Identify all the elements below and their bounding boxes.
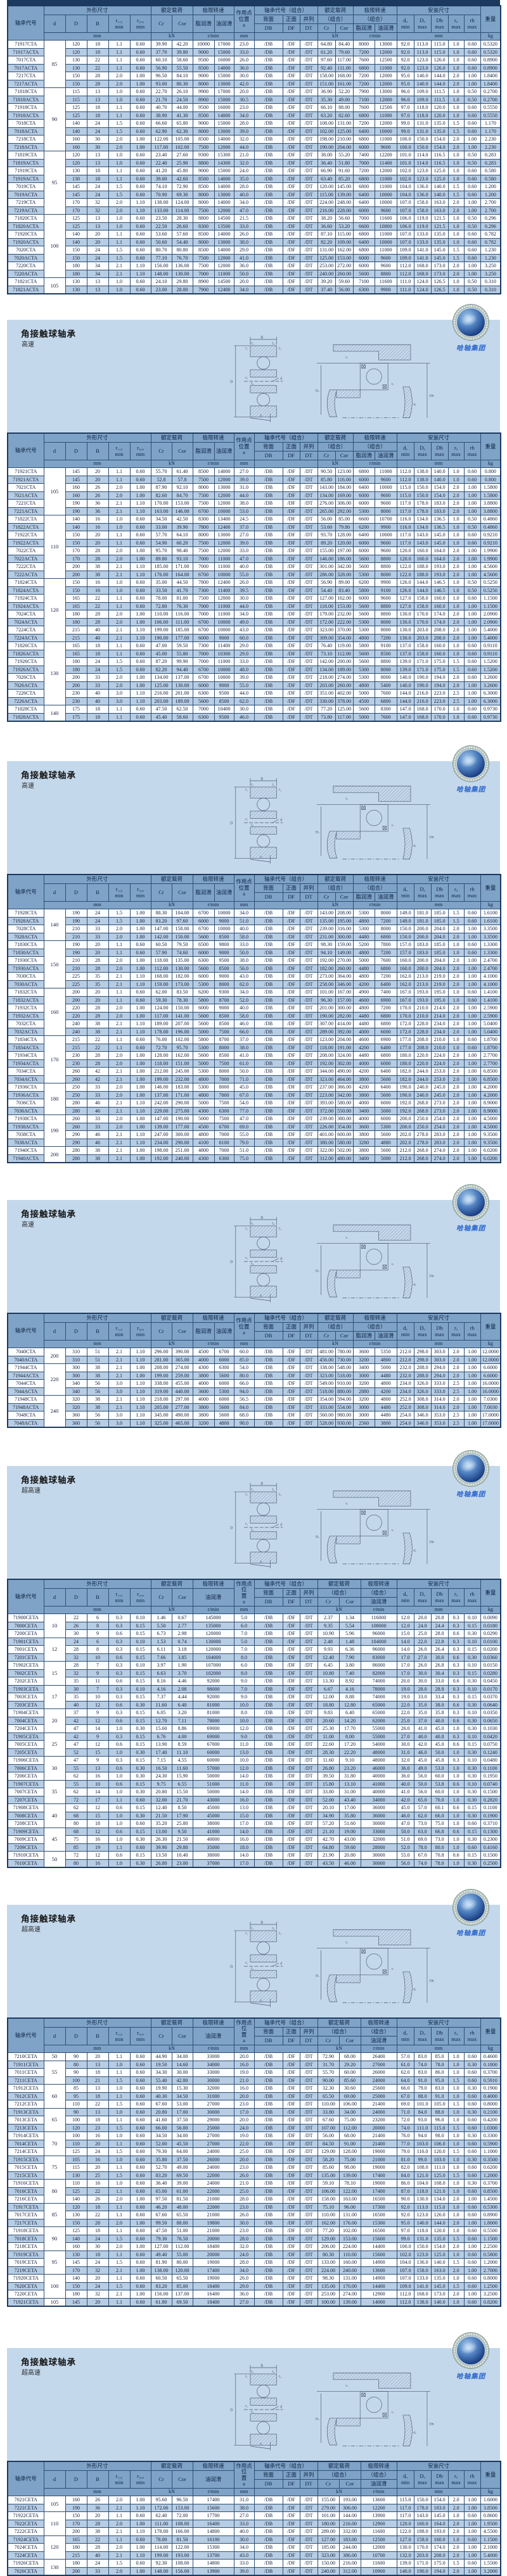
data-cell: 250 [65, 1091, 87, 1099]
data-cell: 8000 [375, 626, 397, 635]
bearing-code-cell: 7022CETA [8, 2520, 44, 2528]
data-cell: 30.5 [234, 96, 254, 104]
data-cell: /DB [254, 254, 283, 262]
column-header: 极限转速 [361, 1579, 397, 1589]
data-cell: 38000 [193, 1852, 234, 1860]
data-cell: 2.0 [108, 681, 130, 690]
data-cell: 0.60 [464, 2124, 480, 2132]
data-cell: 1.9900 [480, 555, 501, 563]
data-cell: 0.8600 [480, 2512, 501, 2520]
data-cell: /DT [300, 2092, 318, 2100]
data-cell: 2.0 [448, 507, 464, 515]
data-cell: 123.0 [414, 167, 431, 175]
table-row: 71926CTA180241.50.6087.2099.907000110003… [8, 658, 501, 666]
data-cell: 3.97 [151, 1662, 172, 1670]
table-row: 71940CTA200280382.11.00198.00251.0048007… [8, 1147, 501, 1155]
data-cell: 2.0 [108, 1004, 130, 1013]
data-cell: /DT [300, 2053, 318, 2061]
data-cell: /DT [300, 1147, 318, 1155]
data-cell: 0.6 [108, 1630, 130, 1638]
data-cell: 17.0000 [480, 1419, 501, 1427]
bearing-code-cell: 71919CETA [8, 2251, 44, 2259]
bore-diameter-cell: 20 [44, 1709, 65, 1733]
bearing-code-cell: 7028CTA [8, 925, 44, 933]
table-row: 71930CTA210282.01.00118.00135.0063009500… [8, 957, 501, 965]
data-cell: 2.0 [108, 925, 130, 933]
data-cell: 17400 [361, 2187, 397, 2195]
bearing-code-cell: 7224ACTA [8, 634, 44, 642]
data-cell: 60.1 [431, 1804, 448, 1812]
data-cell: 130 [65, 175, 87, 183]
data-cell: 0.60 [464, 41, 480, 49]
data-cell: 1.0 [448, 222, 464, 230]
data-cell: /DB [254, 1131, 283, 1139]
data-cell: 9.50 [172, 1828, 193, 1836]
data-cell: 81.0 [397, 2156, 414, 2164]
data-cell: 8500 [193, 246, 214, 255]
data-cell: /DT [300, 973, 318, 981]
data-cell: /DT [300, 2251, 318, 2259]
bearing-code-cell: 71922ACTA [8, 539, 44, 547]
data-cell: /DT [300, 2275, 318, 2283]
data-cell: 53.60 [318, 523, 335, 531]
data-cell: 2.0 [108, 1059, 130, 1068]
data-cell: 276.00 [318, 500, 335, 508]
data-cell: 1.1 [108, 705, 130, 714]
data-cell: 29.20 [339, 2061, 361, 2069]
data-cell: 7500 [193, 206, 214, 215]
data-cell: 16400 [193, 2520, 234, 2528]
column-header: D [65, 2471, 87, 2489]
data-cell: 4200 [353, 1068, 375, 1076]
data-cell: 140.0 [397, 2567, 414, 2575]
data-cell: 0.60 [130, 88, 151, 96]
data-cell: /DT [300, 2219, 318, 2227]
data-cell: 4300 [193, 1154, 214, 1163]
data-cell: 140 [65, 238, 87, 246]
data-cell: 115 [65, 2164, 87, 2172]
column-header: 脂润滑 [193, 15, 214, 33]
data-cell: /DB [254, 1147, 283, 1155]
data-cell: 0.0740 [480, 1780, 501, 1788]
data-cell: 1.00 [130, 1075, 151, 1083]
data-cell: 76.70 [172, 254, 193, 262]
data-cell: 3.0 [108, 1380, 130, 1388]
data-cell: 41.70 [172, 586, 193, 595]
data-cell: 18400 [193, 2298, 234, 2306]
data-cell: 113.0 [414, 41, 431, 49]
data-cell: 1.0 [448, 515, 464, 524]
data-cell: 78.00 [151, 2535, 172, 2544]
data-cell: 110 [65, 2180, 87, 2188]
svg-text:B: B [260, 1216, 263, 1220]
data-cell: 0.5250 [480, 586, 501, 595]
data-cell: 112.0 [397, 476, 414, 484]
bearing-cross-section-drawing: B r₂ r₄ r₁ r₃ r₁ r₂ D d a [220, 1214, 298, 1304]
table-row: 7213CETA120231.50.6066.0056.002500024.0/… [8, 2124, 501, 2132]
data-cell: /DT [300, 1772, 318, 1781]
data-cell: 1.0 [448, 2180, 464, 2188]
data-cell: 5.4000 [480, 2551, 501, 2560]
data-cell: 51.0 [397, 1836, 414, 1844]
bearing-spec-table: 轴承代号外形尺寸额定载荷极限转速作用点 位置 a轴承代号（组合）额定载荷极限转速… [7, 432, 501, 722]
data-cell: 28 [87, 618, 108, 626]
data-cell: 78.30 [172, 996, 193, 1004]
data-cell: /DF [283, 1717, 300, 1725]
data-cell: 80 [65, 1859, 87, 1867]
data-cell: 56 [87, 1419, 108, 1427]
bearing-code-cell: 7224CTA [8, 626, 44, 635]
data-cell: 192.00 [318, 1059, 335, 1068]
bearing-code-cell: 7017ACTA [8, 64, 44, 72]
data-cell: /DB [254, 2180, 283, 2188]
data-cell: 2.1 [108, 2551, 130, 2560]
data-cell: 154.0 [431, 136, 448, 144]
bearing-code-cell: 7020CETA [8, 2282, 44, 2290]
data-cell: /DF [283, 1036, 300, 1044]
data-cell: /DB [254, 980, 283, 988]
data-cell: 133.00 [151, 206, 172, 215]
data-cell: 0.5550 [480, 111, 501, 120]
data-cell: 7500 [193, 547, 214, 555]
data-cell: 175 [65, 713, 87, 721]
data-cell: 126.0 [431, 56, 448, 65]
svg-text:rₐ: rₐ [345, 1940, 348, 1944]
data-cell: 140 [65, 2235, 87, 2243]
data-cell: /DT [300, 2567, 318, 2575]
bore-diameter-cell: 180 [44, 1083, 65, 1115]
data-cell: 7200 [353, 72, 375, 80]
data-cell: 180 [65, 2290, 87, 2299]
data-cell: 25000 [193, 2124, 234, 2132]
data-cell: 0.50 [464, 586, 480, 595]
data-cell: 360 [65, 1419, 87, 1427]
data-cell: 8000 [375, 618, 397, 626]
column-header: 轴承代号（组合） [254, 6, 318, 15]
bearing-code-cell: 71826ACTA [8, 650, 44, 658]
data-cell: 1.10 [130, 1348, 151, 1356]
data-cell: 14 [87, 1725, 108, 1733]
data-cell: /DT [300, 484, 318, 492]
data-cell: 12 [87, 1804, 108, 1812]
table-row: 7007CETA62141.00.3020.8015.505000014.0/D… [8, 1788, 501, 1796]
data-cell: 38.00 [318, 151, 335, 160]
data-cell: 9.3500 [480, 1131, 501, 1139]
data-cell: 5600 [353, 610, 375, 619]
data-cell: 7200 [375, 1004, 397, 1013]
bearing-globe-logo-icon [453, 2333, 489, 2368]
data-cell: 6.76 [151, 1733, 172, 1741]
data-cell: 1.5 [448, 246, 464, 255]
data-cell: 93.70 [318, 531, 335, 540]
data-cell: 296.00 [151, 1348, 172, 1356]
data-cell: 1.0 [448, 286, 464, 294]
svg-text:r₄: r₄ [272, 783, 274, 786]
data-cell: 190.00 [151, 634, 172, 642]
data-cell: 135.00 [318, 917, 335, 925]
data-cell: 13000 [214, 127, 234, 136]
data-cell: 1.00 [130, 2520, 151, 2528]
data-cell: 1.00 [130, 1091, 151, 1099]
data-cell: 6800 [353, 183, 375, 191]
column-header: rₐ max [448, 443, 464, 460]
bore-diameter-cell: 90 [44, 2227, 65, 2251]
data-cell: 490.00 [335, 1068, 353, 1076]
data-cell: 47 [65, 1741, 87, 1749]
bearing-code-cell: 71908CETA [8, 1804, 44, 1812]
svg-text:d: d [280, 377, 282, 381]
data-cell: 115 [65, 96, 87, 104]
column-header: （组合） [318, 1589, 361, 1598]
data-cell: 136.0 [414, 183, 431, 191]
data-cell: 12500 [375, 104, 397, 112]
data-cell: /DT [300, 127, 318, 136]
data-cell: 2.1 [108, 1075, 130, 1083]
data-cell: 1.00 [130, 555, 151, 563]
data-cell: 90.50 [318, 468, 335, 476]
data-cell: 1.1 [108, 111, 130, 120]
data-cell: 6800 [353, 64, 375, 72]
data-cell: 171.0 [414, 2560, 431, 2568]
bearing-code-cell: 7205CETA [8, 1748, 44, 1757]
data-cell: 0.60 [464, 2148, 480, 2156]
data-cell: 4800 [353, 1004, 375, 1013]
data-cell: 14000 [214, 468, 234, 476]
data-cell: 232.00 [172, 1075, 193, 1083]
bearing-code-cell: 7018CTA [8, 120, 44, 128]
data-cell: 274.00 [172, 1364, 193, 1372]
data-cell: /DF [283, 642, 300, 650]
table-row: 7221CTA190362.11.10170.00153.00750012000… [8, 500, 501, 508]
table-row: 71910CETA5072120.60.1513.5010.403800014.… [8, 1852, 501, 1860]
data-cell: 65000 [361, 1709, 397, 1717]
data-cell: 5600 [214, 1411, 234, 1420]
data-cell: 3600 [353, 1348, 375, 1356]
data-cell: 0.15 [130, 1733, 151, 1741]
column-header: r/min [193, 902, 234, 909]
data-cell: 14.0 [234, 1788, 254, 1796]
data-cell: /DF [283, 1123, 300, 1131]
data-cell: /DF [283, 2085, 300, 2093]
data-cell: 24.5 [234, 515, 254, 524]
data-cell: /DB [254, 111, 283, 120]
data-cell: 5.96 [339, 1630, 361, 1638]
data-cell: 120000 [193, 1630, 234, 1638]
data-cell: /DF [283, 1725, 300, 1733]
column-header: r₃,₄ min [130, 884, 151, 902]
data-cell: 12000 [375, 96, 397, 104]
data-cell: 220 [65, 1012, 87, 1020]
data-cell: 138.0 [414, 476, 431, 484]
data-cell: 62.00 [151, 988, 172, 997]
data-cell: 0.3 [448, 1638, 464, 1646]
data-cell: 50.0 [414, 1780, 431, 1788]
data-cell: /DF [283, 2092, 300, 2100]
data-cell: 190.0 [414, 674, 431, 682]
data-cell: 37.50 [172, 2116, 193, 2125]
data-cell: 6800 [375, 933, 397, 941]
data-cell: /DB [254, 2053, 283, 2061]
data-cell: 7500 [193, 254, 214, 262]
column-header: d [44, 15, 65, 33]
data-cell: 163.00 [339, 2195, 361, 2204]
data-cell: 8700 [214, 996, 234, 1004]
data-cell: 2.0 [448, 634, 464, 642]
data-cell: 15 [87, 1812, 108, 1820]
data-cell: 1.00 [130, 681, 151, 690]
data-cell: 7400 [375, 988, 397, 997]
data-cell: 70.0 [431, 1796, 448, 1804]
table-row: 7038CTA290462.11.10247.00300.00480070005… [8, 1131, 501, 1139]
data-cell: 33 [87, 1083, 108, 1092]
data-cell: 5600 [214, 1403, 234, 1411]
svg-text:a: a [260, 1560, 262, 1564]
table-row: 71818CTA90115131.00.6022.7026.1099001700… [8, 88, 501, 96]
data-cell: 35.0 [414, 1709, 431, 1717]
data-cell: 18 [87, 175, 108, 183]
data-cell: 52.8 [151, 476, 172, 484]
data-cell: 0.60 [464, 2164, 480, 2172]
data-cell: 119.0 [414, 215, 431, 223]
data-cell: 120 [65, 2203, 87, 2211]
data-cell: 1.00 [130, 610, 151, 619]
data-cell: 93.0 [414, 2116, 431, 2125]
data-cell: 56.00 [318, 2132, 339, 2140]
data-cell: 15600 [361, 2251, 397, 2259]
data-cell: 125 [65, 2227, 87, 2235]
svg-text:dₐ: dₐ [413, 403, 416, 407]
data-cell: 10000 [214, 925, 234, 933]
data-cell: /DF [283, 1757, 300, 1765]
data-cell: 1.00 [464, 690, 480, 698]
data-cell: 32 [87, 199, 108, 207]
data-cell: 57.8 [172, 476, 193, 484]
data-cell: 0.60 [130, 2560, 151, 2568]
data-cell: 1.00 [464, 270, 480, 278]
data-cell: 7400 [353, 151, 375, 160]
data-cell: 0.50 [464, 523, 480, 531]
data-cell: 204.00 [335, 1036, 353, 1044]
data-cell: 370.00 [335, 626, 353, 635]
data-cell: 92.0 [397, 2203, 414, 2211]
data-cell: 104.00 [172, 909, 193, 918]
data-cell: 38.90 [151, 111, 172, 120]
data-cell: 5.0400 [480, 1028, 501, 1036]
data-cell: 7600 [353, 104, 375, 112]
data-cell: 35.0 [414, 1701, 431, 1709]
data-cell: 117.0 [397, 500, 414, 508]
data-cell: /DT [300, 2512, 318, 2520]
data-cell: 8000 [193, 531, 214, 540]
column-header: r/min [193, 460, 234, 468]
data-cell: /DF [283, 964, 300, 973]
data-cell: 33.0 [234, 2560, 254, 2568]
data-cell: 1.1 [108, 2227, 130, 2235]
data-cell: 113.0 [414, 2203, 431, 2211]
data-cell: 0.8000 [480, 2100, 501, 2109]
data-cell: 1.00 [464, 136, 480, 144]
data-cell: /DF [283, 500, 300, 508]
svg-text:d: d [280, 1258, 282, 1261]
data-cell: 104000 [361, 1638, 397, 1646]
data-cell: 62.0 [234, 980, 254, 988]
data-cell: 23.20 [339, 1764, 361, 1772]
column-header: 额定载荷 [151, 1313, 193, 1323]
data-cell: 173.00 [172, 980, 193, 988]
data-cell: 19000 [193, 2275, 234, 2283]
data-cell: 27.0 [397, 1733, 414, 1741]
data-cell: 22.70 [151, 88, 172, 96]
data-cell: 340 [65, 1387, 87, 1396]
data-cell: /DT [300, 286, 318, 294]
bearing-spec-table: 轴承代号外形尺寸额定载荷极限转速作用点 位置 a轴承代号（组合）额定载荷极限转速… [7, 5, 501, 294]
data-cell: 105.00 [172, 136, 193, 144]
data-cell: 60000 [193, 1757, 234, 1765]
data-cell: 2.5 [448, 697, 464, 705]
data-cell: 2.0 [448, 491, 464, 500]
data-cell: 26 [87, 484, 108, 492]
data-cell: 212.0 [397, 1147, 414, 1155]
column-header: kg [480, 33, 501, 41]
data-cell: /DB [254, 957, 283, 965]
data-cell: 105.0 [431, 2100, 448, 2109]
data-cell: 40.70 [151, 104, 172, 112]
data-cell: 1.1 [108, 2116, 130, 2125]
data-cell: 37.50 [172, 2156, 193, 2164]
svg-text:D: D [230, 822, 233, 826]
column-header: 并列 [300, 2471, 318, 2480]
data-cell: 0.3700 [480, 2069, 501, 2077]
data-cell: /DF [283, 1685, 300, 1693]
data-cell: 39.0 [234, 674, 254, 682]
data-cell: 150 [65, 539, 87, 547]
data-cell: 16000 [214, 56, 234, 65]
data-cell: 99.0 [397, 2235, 414, 2243]
data-cell: 1.00 [464, 980, 480, 988]
bearing-code-cell: 71832CTA [8, 988, 44, 997]
data-cell: 195.00 [335, 917, 353, 925]
table-row: 71921ACTA145201.10.6052.857.875001200039… [8, 476, 501, 484]
data-cell: 1.1 [108, 2535, 130, 2544]
data-cell: 67.60 [318, 2116, 339, 2125]
bearing-spec-table: 轴承代号外形尺寸额定载荷极限转速作用点位 置 a轴承代号（组合）额定载荷极限转速… [7, 2461, 501, 2576]
data-cell: /DF [283, 127, 300, 136]
data-cell: 0.30 [130, 1748, 151, 1757]
data-cell: 0.60 [130, 2227, 151, 2235]
data-cell: /DF [283, 2235, 300, 2243]
data-cell: 24000 [193, 2148, 234, 2156]
table-row: 71921CETA105145201.10.6061.8069.50184002… [8, 2298, 501, 2306]
data-cell: 7200 [353, 48, 375, 56]
data-cell: 5000 [193, 1059, 214, 1068]
column-header: DF [283, 1598, 300, 1607]
data-cell: 26.30 [151, 1836, 172, 1844]
bearing-code-cell: 7004CETA [8, 1717, 44, 1725]
data-cell: 0.1950 [480, 1772, 501, 1781]
data-cell: 0.60 [464, 2140, 480, 2148]
data-cell: 81.90 [151, 2259, 172, 2267]
bearing-code-cell: 71818CTA [8, 88, 44, 96]
data-cell: 18 [87, 705, 108, 714]
data-cell: 33.4 [431, 1693, 448, 1702]
company-logo: 哈轴集团 [451, 746, 491, 794]
data-cell: 61.80 [151, 2298, 172, 2306]
data-cell: 1.5 [108, 2171, 130, 2180]
data-cell: 30 [87, 2243, 108, 2251]
data-cell: 95.0 [431, 2076, 448, 2085]
column-header: 并列 [300, 1589, 318, 1598]
data-cell: 252.0 [397, 1396, 414, 1404]
